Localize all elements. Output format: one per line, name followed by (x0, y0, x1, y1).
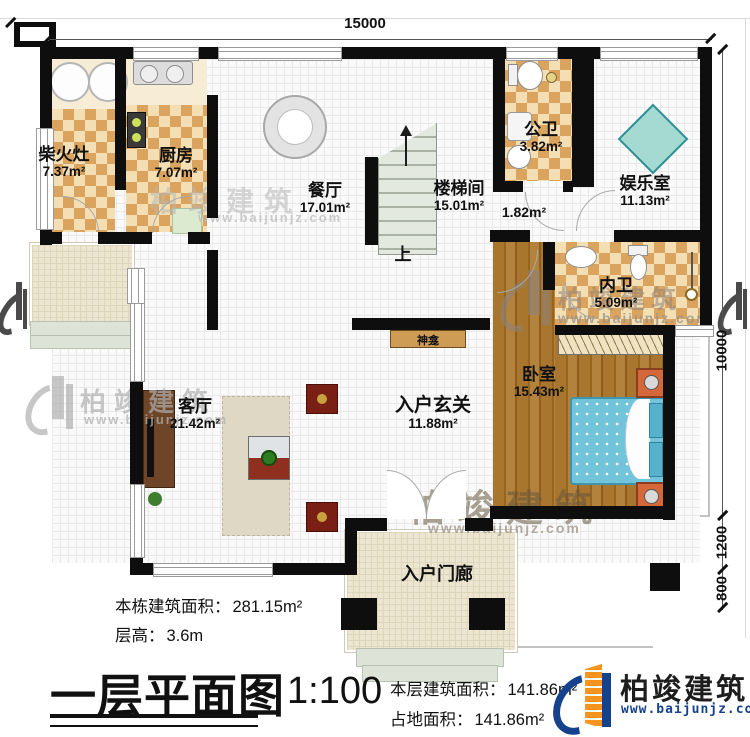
wall-entertainment-bottom (490, 230, 530, 242)
room-label-entry-porch: 入户门廊 (372, 565, 502, 585)
stat-value: 141.86m² (475, 711, 545, 729)
wall-stove-bottom (40, 232, 62, 244)
room-area: 17.01m² (283, 201, 367, 216)
bed (570, 397, 666, 485)
wall-publicbath-ent-divider (572, 47, 594, 187)
brand-website: www.baijunjz.com (621, 702, 750, 717)
room-name: 娱乐室 (603, 175, 687, 194)
towel-ring (685, 288, 698, 301)
room-area: 15.01m² (417, 199, 501, 214)
dining-table (263, 95, 327, 159)
room-area: 1.82m² (493, 205, 555, 220)
wardrobe (558, 333, 665, 355)
label-stairs-up: 上 (388, 246, 418, 265)
stat-label: 本栋建筑面积： (115, 598, 231, 616)
stat-floor-height: 层高：3.6m (115, 622, 203, 646)
window-entertainment (600, 47, 698, 61)
wall-innerbath-left (543, 242, 555, 290)
window-porch-junction (127, 268, 145, 304)
bed-pillow (649, 403, 663, 438)
watermark-logo-icon (28, 376, 74, 430)
towel-bar (691, 252, 693, 290)
stat-footprint-area: 占地面积：141.86m² (390, 706, 544, 730)
toilet-bowl (517, 61, 543, 90)
room-name: 厨房 (134, 147, 218, 166)
window-living-left-upper (130, 300, 145, 382)
sink-bowl (140, 65, 158, 83)
room-label-public-bath: 公卫 3.82m² (505, 121, 577, 155)
plan-title-underline (50, 714, 258, 727)
room-label-chaihuozao: 柴火灶 7.37m² (20, 146, 108, 180)
window-publicbath (506, 47, 558, 61)
room-name: 餐厅 (283, 182, 367, 201)
room-label-bedroom: 卧室 15.43m² (497, 366, 581, 400)
wall-foyer-bottom (465, 518, 493, 531)
wall-bedroom-east (663, 330, 675, 520)
window-dining (218, 47, 342, 61)
room-area: 7.07m² (134, 166, 218, 181)
shrine-label: 神龛 (417, 335, 439, 347)
sink-bowl (166, 65, 184, 83)
wall-bedroom-bottom (490, 506, 675, 519)
label-stair-nook-area: 1.82m² (493, 205, 555, 220)
stat-total-area: 本栋建筑面积：281.15m² (115, 593, 302, 617)
dining-table-top (277, 109, 313, 145)
stat-floor-area: 本层建筑面积：141.86m² (390, 676, 577, 700)
room-name: 楼梯间 (417, 180, 501, 199)
window-kitchen (133, 47, 199, 61)
dim-right-mid-label: 1200 (714, 518, 731, 568)
plan-scale: 1:100 (287, 670, 382, 713)
dim-right-upper-label: 10000 (714, 321, 731, 381)
watermark-edge-icon-left (2, 282, 28, 330)
wall-stove-bottom (188, 232, 210, 244)
room-name: 入户门廊 (372, 565, 502, 585)
dim-line-top (48, 39, 712, 40)
room-name: 内卫 (580, 277, 652, 296)
room-label-living: 客厅 21.42m² (151, 398, 239, 432)
stat-value: 281.15m² (233, 598, 303, 616)
corner-column (650, 563, 680, 591)
watermark-url: www.baijunjz.com (428, 520, 581, 536)
kitchen-sink (133, 61, 193, 85)
innerbath-sink (565, 246, 597, 268)
room-area: 5.09m² (580, 296, 652, 311)
room-name: 客厅 (151, 398, 239, 417)
room-area: 3.82m² (505, 140, 577, 155)
stove-pot (50, 62, 90, 102)
wall-entertainment-bottom (614, 230, 712, 242)
window-living-left-lower (130, 484, 145, 558)
room-area: 15.43m² (497, 385, 581, 400)
room-label-foyer: 入户玄关 11.88m² (368, 396, 498, 432)
entry-porch-floor (345, 530, 517, 652)
left-porch-step (30, 335, 132, 349)
wall-innerbath-bottom (555, 325, 675, 335)
dim-top-label: 15000 (325, 15, 405, 32)
wall-dining-living-divider (207, 250, 218, 330)
stairs-arrow-head (400, 119, 412, 136)
plant (148, 492, 162, 506)
room-label-inner-bath: 内卫 5.09m² (580, 277, 652, 311)
room-name: 柴火灶 (20, 146, 108, 165)
valve (546, 72, 557, 83)
stairs-up-text: 上 (388, 246, 418, 265)
burner (132, 133, 141, 142)
room-name: 公卫 (505, 121, 577, 140)
floor-plan-page: 15000 10000 1200 800 (0, 0, 750, 737)
room-area: 11.88m² (368, 417, 498, 432)
left-porch-floor (30, 243, 134, 325)
coffee-table (248, 436, 290, 480)
side-table (306, 384, 338, 414)
bed-pillow (649, 442, 663, 477)
porch-column (341, 598, 377, 630)
table-plant (261, 450, 277, 466)
stat-value: 3.6m (167, 627, 204, 645)
room-area: 11.13m² (603, 194, 687, 209)
stat-label: 本层建筑面积： (390, 681, 506, 699)
cooktop (127, 112, 146, 148)
room-label-entertainment: 娱乐室 11.13m² (603, 175, 687, 209)
wall-stove-bottom (98, 232, 152, 244)
wall-stove-kitchen-divider (115, 59, 126, 190)
porch-column (469, 598, 505, 630)
shrine-shelf: 神龛 (390, 330, 466, 348)
window-sill-bedroom-east (675, 325, 714, 337)
terrace-line (513, 646, 653, 648)
wall-foyer-top (352, 318, 490, 330)
nightstand-lamp (644, 375, 659, 390)
window-living-bottom (153, 563, 273, 577)
wall-publicbath-left (493, 59, 505, 188)
room-name: 入户玄关 (368, 396, 498, 417)
bed-quilt (625, 399, 650, 479)
room-label-kitchen: 厨房 7.07m² (134, 147, 218, 181)
stat-label: 层高： (115, 627, 165, 645)
room-name: 卧室 (497, 366, 581, 385)
side-table (306, 502, 338, 532)
dim-right-lower-label: 800 (714, 567, 731, 611)
brand-logo-icon (556, 664, 612, 728)
room-area: 21.42m² (151, 417, 239, 432)
burner (132, 118, 141, 127)
stat-label: 占地面积： (390, 711, 473, 729)
room-label-dining: 餐厅 17.01m² (283, 182, 367, 216)
room-label-stairwell: 楼梯间 15.01m² (417, 180, 501, 214)
wall-right-outer (700, 47, 712, 335)
nightstand-lamp (644, 489, 659, 504)
room-area: 7.37m² (20, 165, 108, 180)
terrace-line (708, 335, 710, 515)
